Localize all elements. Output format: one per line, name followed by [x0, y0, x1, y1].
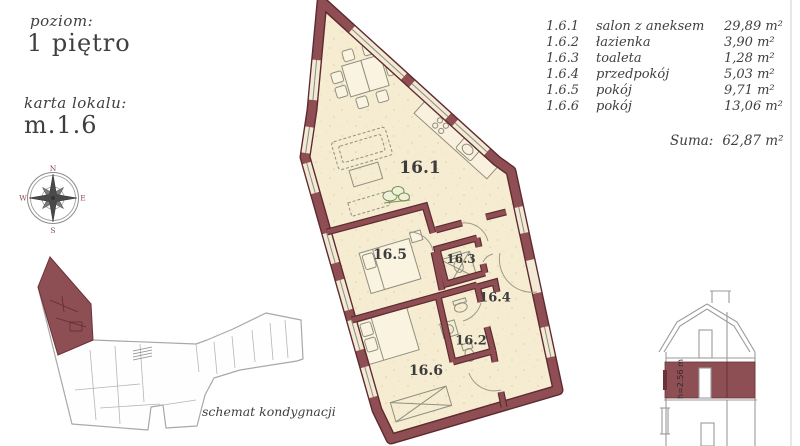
room-name: przedpokój [596, 67, 724, 83]
room-name: salon z aneksem [596, 19, 724, 35]
room-label-161: 16.1 [399, 158, 440, 178]
room-code: 1.6.3 [546, 51, 596, 67]
room-code: 1.6.5 [546, 83, 596, 99]
room-code: 1.6.4 [546, 67, 596, 83]
level-value: 1 piętro [27, 29, 131, 57]
legend-row: 1.6.4 przedpokój 5,03 m² [546, 67, 798, 83]
room-area: 3,90 m² [724, 35, 798, 51]
room-name: łazienka [596, 35, 724, 51]
compass-west-label: W [19, 194, 27, 203]
room-label-164: 16.4 [479, 291, 511, 306]
apartment-card-page: N E S W [0, 0, 800, 446]
level-label: poziom: [30, 12, 93, 30]
compass-north-label: N [50, 164, 57, 173]
room-label-162: 16.2 [455, 334, 487, 349]
schematic-caption: schemat kondygnacji [202, 404, 336, 419]
room-code: 1.6.2 [546, 35, 596, 51]
room-area: 9,71 m² [724, 83, 798, 99]
legend-row: 1.6.6 pokój 13,06 m² [546, 99, 798, 115]
room-area: 29,89 m² [724, 19, 798, 35]
legend-row: 1.6.5 pokój 9,71 m² [546, 83, 798, 99]
total-area: Suma:62,87 m² [670, 133, 784, 149]
compass-east-label: E [80, 194, 85, 203]
room-area: 5,03 m² [724, 67, 798, 83]
room-name: pokój [596, 83, 724, 99]
legend-row: 1.6.1 salon z aneksem 29,89 m² [546, 19, 798, 35]
legend-row: 1.6.3 toaleta 1,28 m² [546, 51, 798, 67]
room-name: toaleta [596, 51, 724, 67]
storey-height-label: h=2.56 m [675, 357, 687, 401]
room-label-165: 16.5 [373, 247, 407, 263]
compass-south-label: S [50, 226, 55, 235]
room-area: 13,06 m² [724, 99, 798, 115]
building-cross-section [659, 291, 757, 446]
room-code: 1.6.1 [546, 19, 596, 35]
card-value: m.1.6 [24, 111, 98, 139]
legend-row: 1.6.2 łazienka 3,90 m² [546, 35, 798, 51]
chimney [710, 291, 731, 303]
compass-rose-icon: N E S W [19, 164, 86, 235]
room-area-legend: 1.6.1 salon z aneksem 29,89 m² 1.6.2 łaz… [546, 19, 798, 115]
total-value: 62,87 m² [722, 133, 783, 149]
room-label-166: 16.6 [409, 363, 443, 379]
card-label: karta lokalu: [24, 94, 127, 112]
room-code: 1.6.6 [546, 99, 596, 115]
room-area: 1,28 m² [724, 51, 798, 67]
room-name: pokój [596, 99, 724, 115]
highlighted-unit-shape [38, 257, 93, 355]
total-label: Suma: [670, 133, 713, 149]
room-label-163: 16.3 [446, 252, 475, 266]
